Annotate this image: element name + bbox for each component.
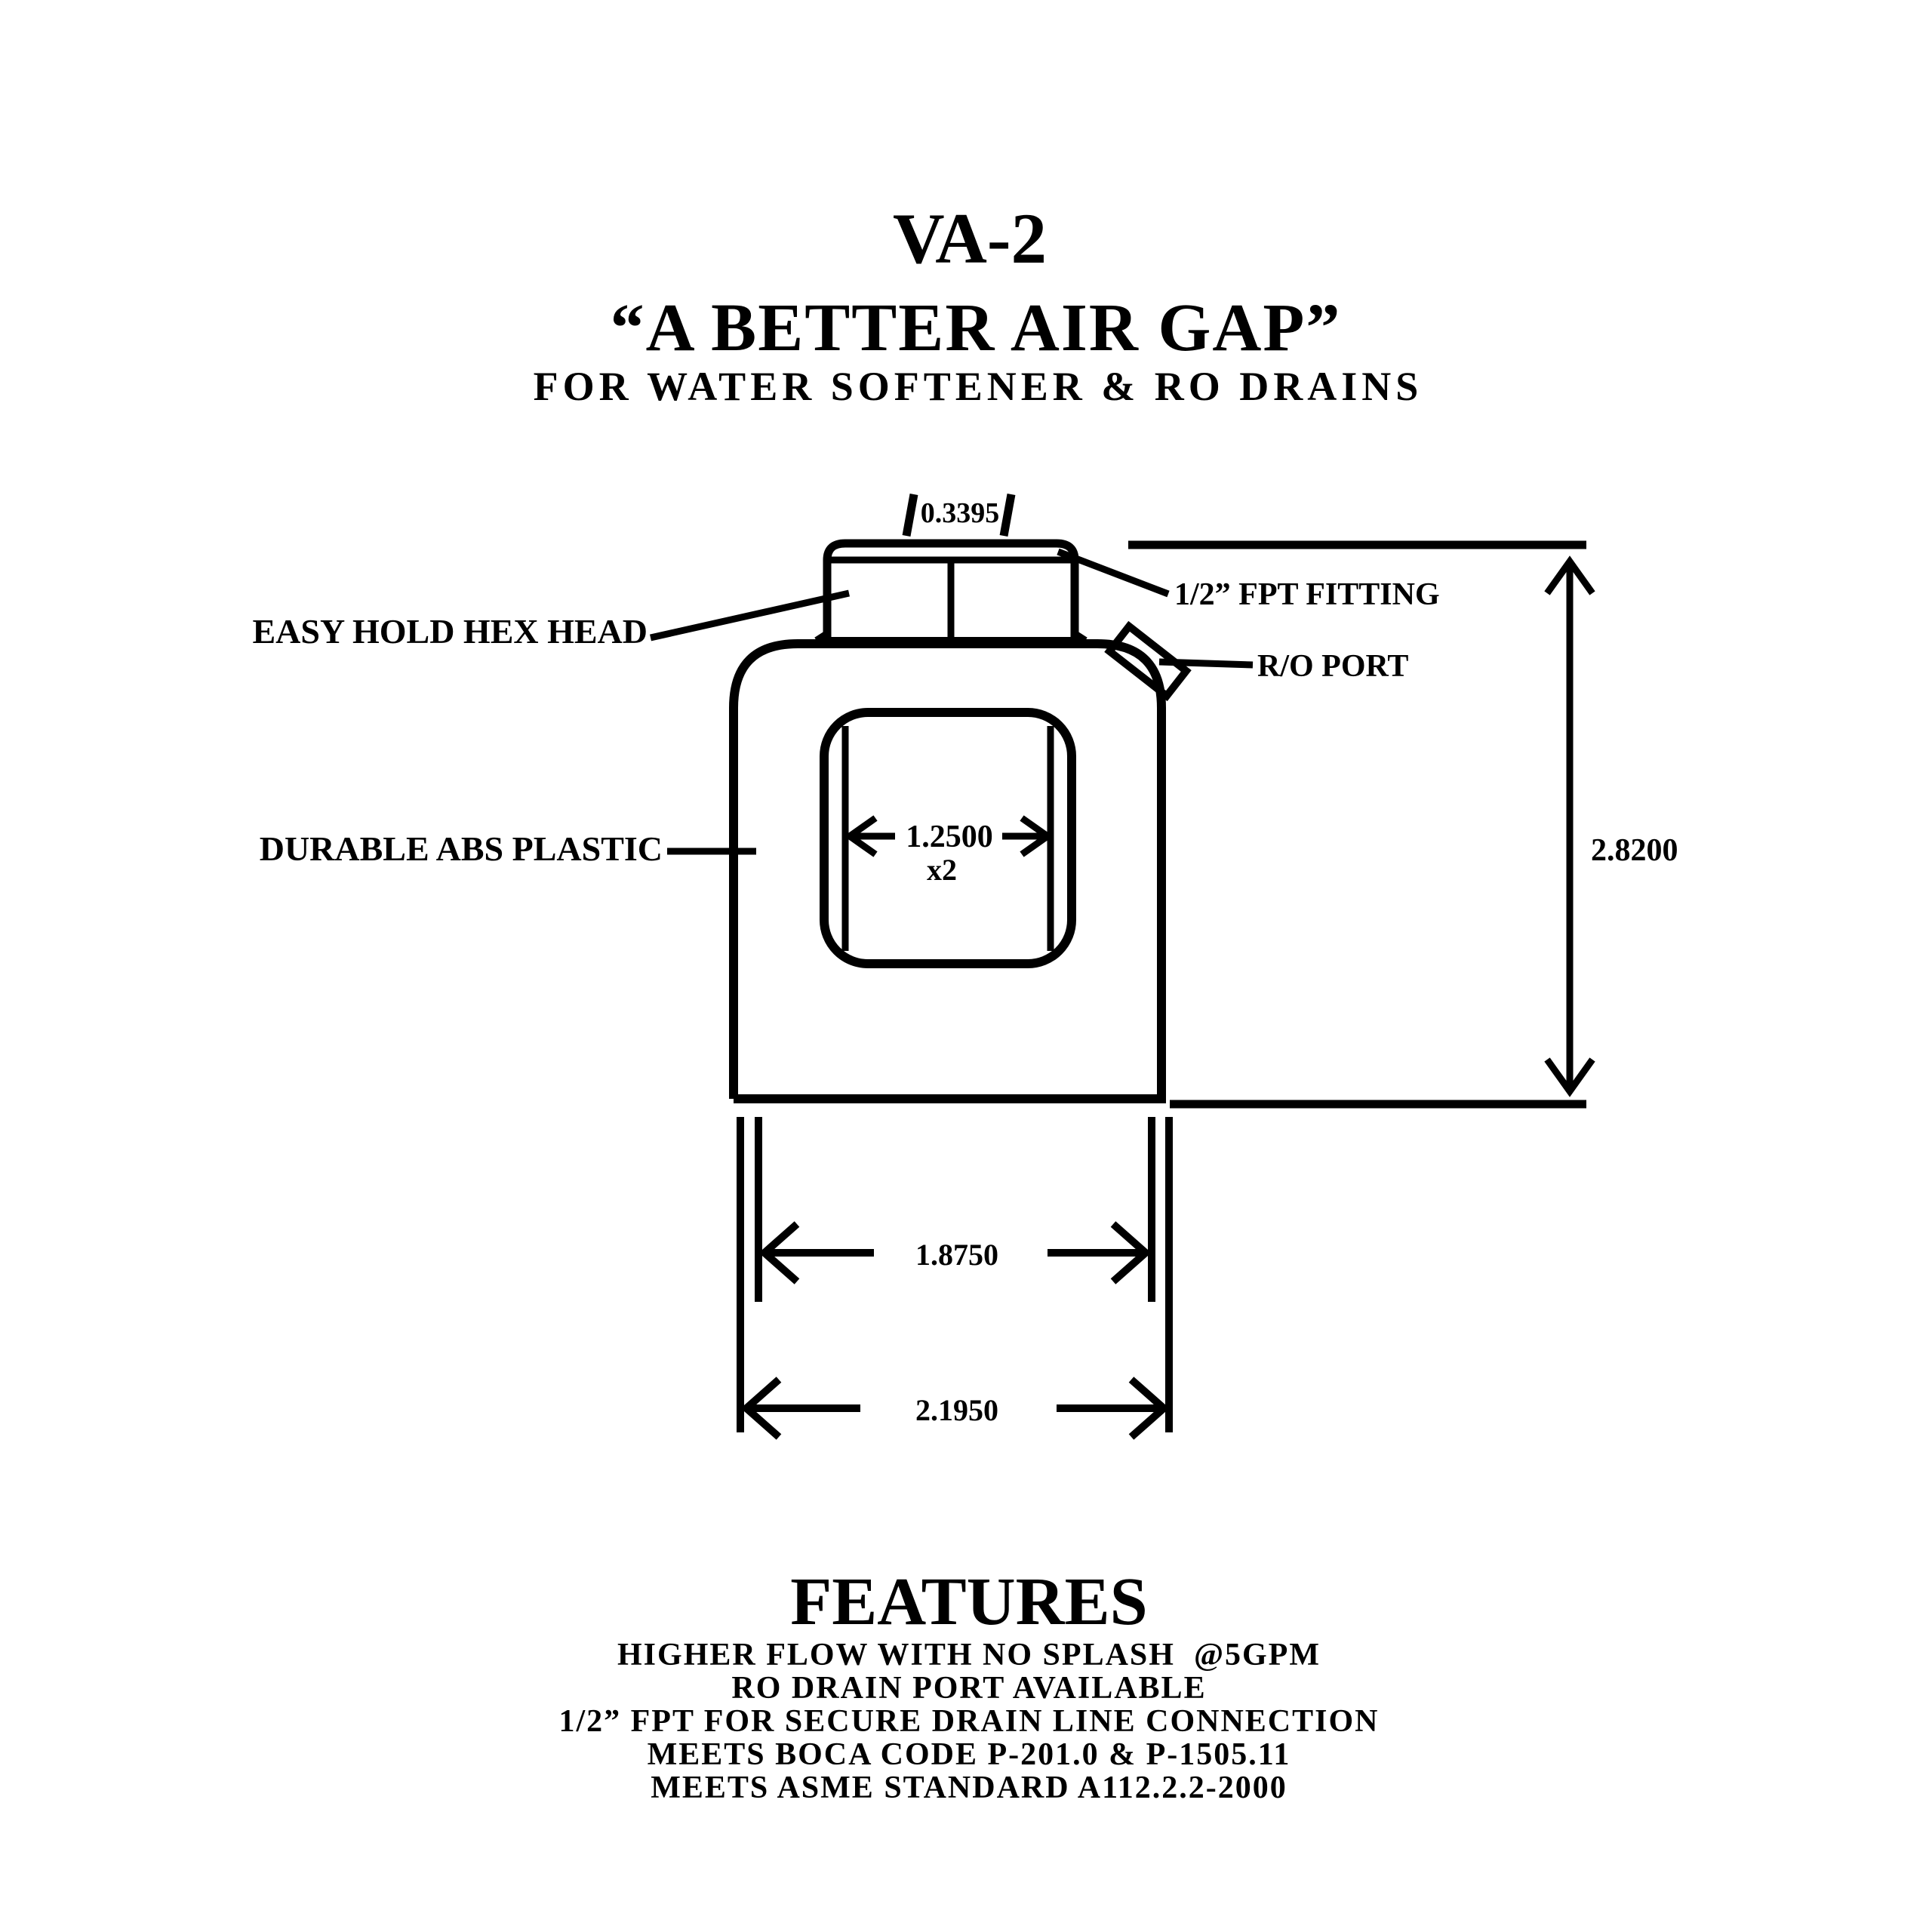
feature-item-3: 1/2” FPT FOR SECURE DRAIN LINE CONNECTIO… bbox=[558, 1704, 1379, 1739]
product-tagline: “A BETTER AIR GAP” bbox=[611, 291, 1342, 365]
dim-outer-value: 2.1950 bbox=[915, 1393, 998, 1427]
dim-inner-width: 1.8750 bbox=[764, 1224, 1146, 1281]
ro-port-leader bbox=[1159, 662, 1253, 665]
dim-window-width: 1.2500 x2 bbox=[850, 818, 1048, 887]
dim-window-right-arrow bbox=[1002, 818, 1048, 854]
dim-outer-right-arrow bbox=[1057, 1380, 1164, 1437]
dim-cap-value: 0.3395 bbox=[921, 497, 1000, 529]
dim-window-left-arrow bbox=[850, 818, 895, 854]
model-number: VA-2 bbox=[893, 198, 1047, 278]
feature-item-5: MEETS ASME STANDARD A112.2.2-2000 bbox=[651, 1770, 1287, 1805]
dim-outer-left-arrow bbox=[746, 1380, 860, 1437]
dim-inner-right-arrow bbox=[1048, 1224, 1146, 1281]
feature-item-2: RO DRAIN PORT AVAILABLE bbox=[731, 1671, 1206, 1706]
dim-cap-width: 0.3395 bbox=[906, 494, 1011, 536]
dim-window-qty: x2 bbox=[927, 853, 957, 887]
dim-inner-value: 1.8750 bbox=[915, 1238, 998, 1272]
ro-port-label: R/O PORT bbox=[1257, 649, 1408, 684]
dim-inner-left-arrow bbox=[764, 1224, 874, 1281]
bottom-extension-ticks bbox=[740, 1117, 1169, 1432]
dim-window-value: 1.2500 bbox=[906, 820, 993, 854]
title-block: VA-2 “A BETTER AIR GAP” FOR WATER SOFTEN… bbox=[534, 198, 1423, 409]
features-block: FEATURES HIGHER FLOW WITH NO SPLASH @5GP… bbox=[558, 1564, 1379, 1805]
abs-plastic-label: DURABLE ABS PLASTIC bbox=[260, 829, 663, 868]
product-subtitle: FOR WATER SOFTENER & RO DRAINS bbox=[534, 364, 1423, 409]
dim-height-value: 2.8200 bbox=[1591, 833, 1678, 868]
dim-overall-height: 2.8200 bbox=[1128, 545, 1678, 1104]
feature-item-4: MEETS BOCA CODE P-201.0 & P-1505.11 bbox=[648, 1737, 1291, 1772]
hex-head-label: EASY HOLD HEX HEAD bbox=[252, 612, 648, 651]
feature-item-1: HIGHER FLOW WITH NO SPLASH @5GPM bbox=[617, 1638, 1321, 1672]
fpt-fitting-label: 1/2” FPT FITTING bbox=[1174, 577, 1440, 612]
spec-sheet: VA-2 “A BETTER AIR GAP” FOR WATER SOFTEN… bbox=[0, 0, 1932, 1932]
hex-head-leader bbox=[651, 593, 849, 638]
features-heading: FEATURES bbox=[790, 1564, 1147, 1639]
dim-outer-width: 2.1950 bbox=[746, 1380, 1164, 1437]
